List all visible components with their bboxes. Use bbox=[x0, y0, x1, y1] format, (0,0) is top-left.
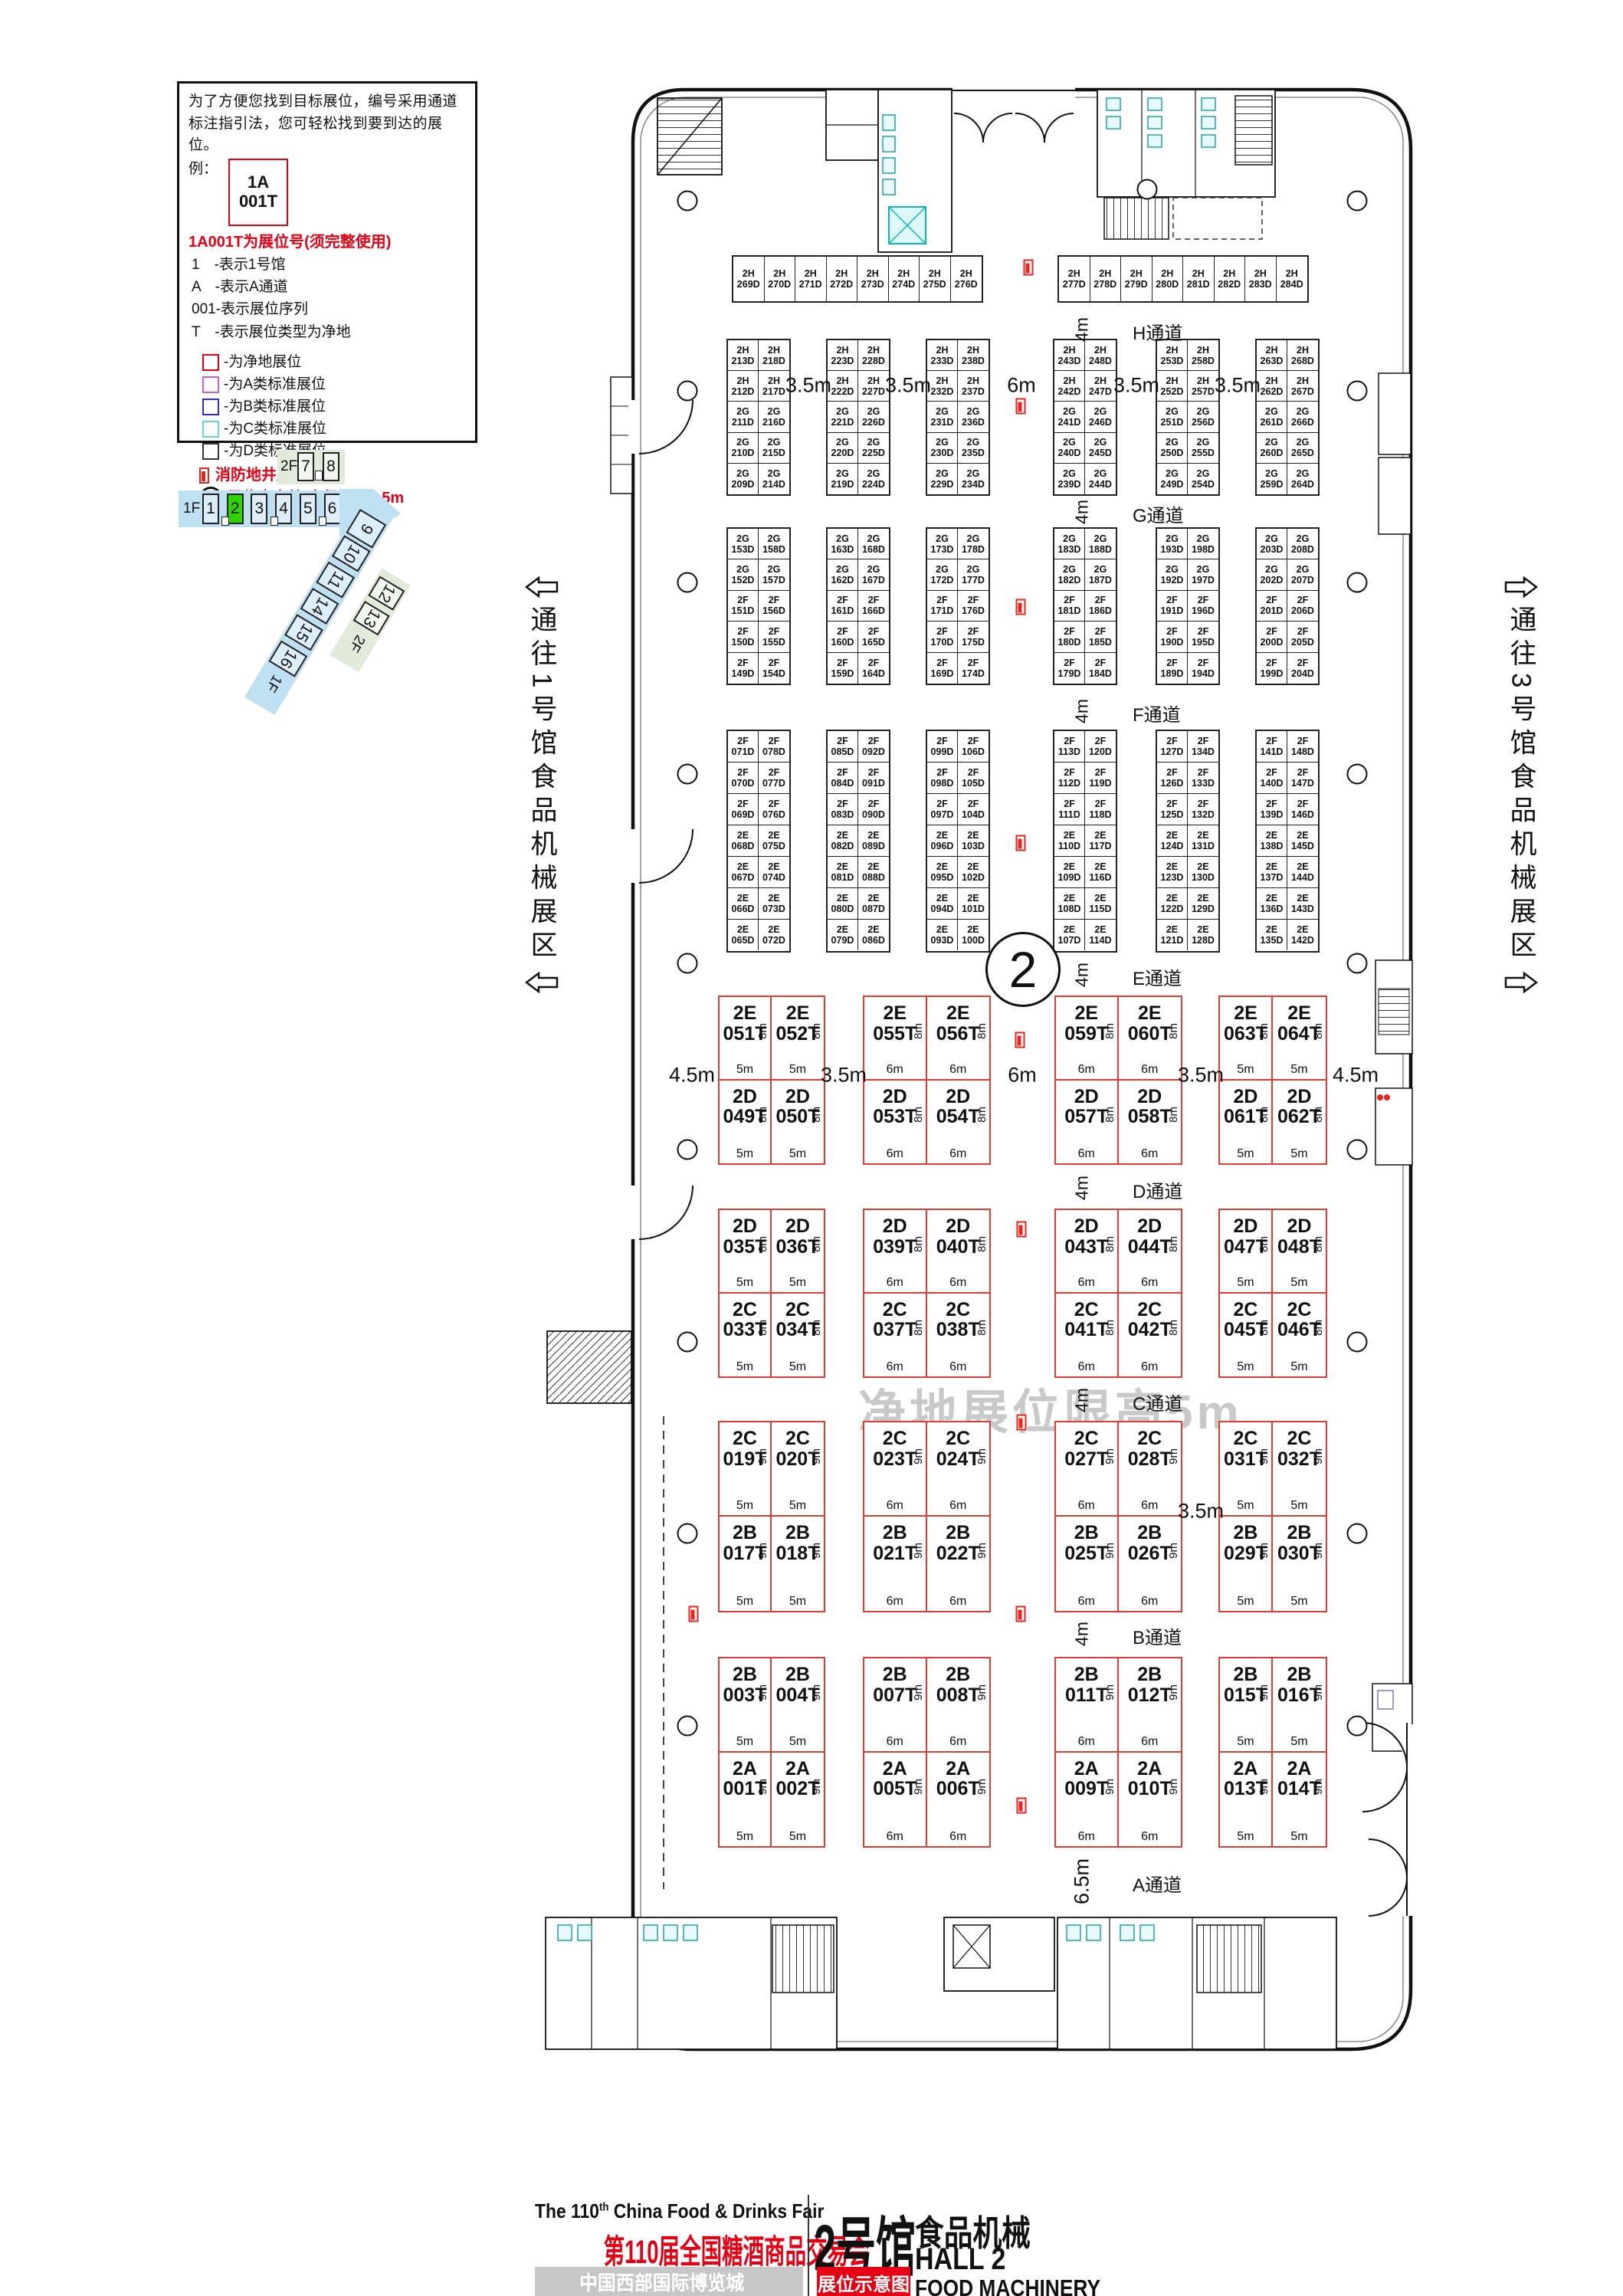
booth-depth-dimension: 8m bbox=[1257, 1236, 1271, 1252]
booth: 2B021T9m6m bbox=[864, 1517, 927, 1611]
booth: 2H218D bbox=[759, 340, 789, 371]
booth-width-dimension: 5m bbox=[720, 1147, 770, 1161]
booth-depth-dimension: 9m bbox=[912, 1448, 925, 1465]
booth: 2F196D bbox=[1188, 591, 1218, 622]
aisle-label: G通道 bbox=[1133, 500, 1184, 527]
booth-width-dimension: 6m bbox=[927, 1499, 990, 1513]
booth: 2G214D bbox=[759, 464, 789, 494]
booth: 2H267D bbox=[1287, 371, 1318, 402]
booth-group: 2H243D2H248D2H242D2H247D2G241D2G246D2G24… bbox=[1053, 339, 1117, 496]
booth: 2F161D bbox=[828, 591, 858, 622]
aisle-label: D通道 bbox=[1133, 1176, 1182, 1203]
booth: 2E107D bbox=[1054, 920, 1085, 951]
booth-width-dimension: 6m bbox=[864, 1360, 926, 1374]
aisle-label: B通道 bbox=[1133, 1622, 1182, 1649]
booth-width-dimension: 6m bbox=[1056, 1147, 1117, 1161]
booth-group-raw: 2B011T9m6m2B012T9m6m2A009T9m6m2A010T9m6m bbox=[1054, 1657, 1182, 1848]
booth-group-raw: 2D047T8m5m2D048T8m5m2C045T8m5m2C046T8m5m bbox=[1218, 1209, 1327, 1378]
booth-depth-dimension: 9m bbox=[975, 1543, 989, 1559]
plan-badge: 展位示意图 bbox=[817, 2267, 910, 2296]
aisle-label: E通道 bbox=[1133, 963, 1182, 990]
booth-depth-dimension: 8m bbox=[756, 1320, 769, 1336]
booth: 2E096D bbox=[927, 825, 958, 857]
booth: 2F201D bbox=[1257, 591, 1287, 622]
booth: 2E079D bbox=[828, 920, 858, 951]
booth: 2F204D bbox=[1287, 653, 1318, 684]
booth-group: 2H223D2H228D2H222D2H227D2G221D2G226D2G22… bbox=[826, 339, 890, 496]
booth-group-raw: 2D043T8m6m2D044T8m6m2C041T8m6m2C042T8m6m bbox=[1054, 1209, 1182, 1378]
booth: 2F099D bbox=[927, 731, 958, 763]
booth: 2G256D bbox=[1188, 402, 1218, 432]
booth: 2G216D bbox=[759, 402, 789, 432]
aisle-width-dimension: 4m bbox=[1072, 699, 1093, 723]
booth: 2C042T8m6m bbox=[1119, 1294, 1182, 1377]
booth-depth-dimension: 8m bbox=[1167, 1107, 1180, 1123]
fire-well-icon bbox=[1015, 1032, 1025, 1048]
booth-depth-dimension: 9m bbox=[1167, 1684, 1180, 1701]
booth-width-dimension: 5m bbox=[1220, 1147, 1271, 1161]
booth: 2D036T8m5m bbox=[772, 1210, 824, 1294]
booth-block: 2H277D2H278D2H279D2H280D2H281D2H282D2H28… bbox=[1057, 255, 1309, 303]
booth: 2H238D bbox=[958, 340, 989, 371]
aisle-label: A通道 bbox=[1133, 1870, 1182, 1897]
booth: 2G219D bbox=[828, 464, 858, 494]
booth-depth-dimension: 8m bbox=[810, 1236, 823, 1252]
booth: 2E066D bbox=[728, 888, 759, 920]
booth: 2E135D bbox=[1257, 920, 1287, 951]
booth: 2H270D bbox=[765, 257, 796, 301]
aisle-width-dimension: 4m bbox=[1072, 963, 1093, 987]
booth: 2C024T9m6m bbox=[927, 1422, 990, 1517]
booth: 2F076D bbox=[759, 794, 789, 825]
booth: 2F159D bbox=[828, 653, 858, 684]
booth: 2B029T9m5m bbox=[1220, 1517, 1273, 1611]
booth-depth-dimension: 9m bbox=[1312, 1543, 1325, 1559]
booth: 2E068D bbox=[728, 825, 759, 857]
booth: 2E087D bbox=[858, 888, 889, 920]
booth: 2F195D bbox=[1188, 622, 1218, 652]
booth: 2H233D bbox=[927, 340, 958, 371]
booth-width-dimension: 6m bbox=[864, 1595, 926, 1609]
booth: 2E080D bbox=[828, 888, 858, 920]
booth-depth-dimension: 8m bbox=[756, 1023, 769, 1039]
booth: 2F127D bbox=[1157, 731, 1188, 763]
gap-dimension: 3.5m bbox=[785, 374, 831, 398]
booth: 2G234D bbox=[958, 464, 989, 494]
column-icon bbox=[677, 1332, 698, 1353]
booth-group: 2F141D2F148D2F140D2F147D2F139D2F146D2E13… bbox=[1255, 730, 1320, 953]
booth-width-dimension: 5m bbox=[1220, 1276, 1271, 1290]
booth-depth-dimension: 9m bbox=[912, 1543, 925, 1559]
column-icon bbox=[1347, 381, 1368, 402]
booth-depth-dimension: 8m bbox=[1103, 1107, 1116, 1123]
booth: 2E145D bbox=[1287, 825, 1318, 857]
booth: 2C037T8m6m bbox=[864, 1294, 927, 1377]
booth-depth-dimension: 8m bbox=[1312, 1320, 1325, 1336]
booth-width-dimension: 6m bbox=[864, 1499, 926, 1513]
booth: 2E065D bbox=[728, 920, 759, 951]
booth: 2H258D bbox=[1188, 340, 1218, 371]
hall-name-en: HALL 2 bbox=[915, 2242, 1005, 2277]
booth: 2G249D bbox=[1157, 464, 1188, 494]
booth-group-raw: 2C027T9m6m2C028T9m6m2B025T9m6m2B026T9m6m bbox=[1054, 1421, 1182, 1612]
booth-depth-dimension: 9m bbox=[810, 1779, 823, 1795]
booth: 2B017T9m5m bbox=[720, 1517, 772, 1611]
booth: 2G230D bbox=[927, 433, 958, 464]
aisle-width-dimension: 6.5m bbox=[1071, 1858, 1094, 1904]
booth: 2F184D bbox=[1085, 653, 1116, 684]
booth: 2F105D bbox=[958, 763, 989, 794]
booth-width-dimension: 6m bbox=[1119, 1499, 1182, 1513]
booth-width-dimension: 6m bbox=[1056, 1360, 1117, 1374]
booth: 2A002T9m5m bbox=[772, 1753, 824, 1847]
booth-depth-dimension: 9m bbox=[1257, 1779, 1271, 1795]
gap-dimension: 3.5m bbox=[821, 1063, 867, 1087]
booth: 2E124D bbox=[1157, 825, 1188, 857]
floorplan-page: 为了方便您找到目标展位，编号采用通道标注指引法，您可轻松找到要到达的展位。 例：… bbox=[0, 0, 1623, 2296]
booth-width-dimension: 6m bbox=[927, 1595, 990, 1609]
booth-group-raw: 2D039T8m6m2D040T8m6m2C037T8m6m2C038T8m6m bbox=[863, 1209, 991, 1378]
booth-width-dimension: 5m bbox=[1273, 1147, 1326, 1161]
booth: 2D048T8m5m bbox=[1273, 1210, 1326, 1294]
booth: 2E138D bbox=[1257, 825, 1287, 857]
booth-width-dimension: 5m bbox=[720, 1360, 770, 1374]
booth: 2F070D bbox=[728, 763, 759, 794]
booth-depth-dimension: 8m bbox=[1167, 1236, 1180, 1252]
booth: 2E137D bbox=[1257, 857, 1287, 888]
booth: 2G192D bbox=[1157, 559, 1188, 590]
column-icon bbox=[677, 572, 698, 593]
booth: 2F092D bbox=[858, 731, 889, 763]
booth: 2G225D bbox=[858, 433, 889, 464]
booth-depth-dimension: 8m bbox=[912, 1023, 925, 1039]
booth: 2F176D bbox=[958, 591, 989, 622]
booth-width-dimension: 5m bbox=[1273, 1360, 1326, 1374]
booth: 2D053T8m6m bbox=[864, 1081, 927, 1164]
booth: 2G152D bbox=[728, 559, 759, 590]
booth-width-dimension: 5m bbox=[720, 1595, 770, 1609]
booth-depth-dimension: 9m bbox=[810, 1448, 823, 1465]
booth-depth-dimension: 9m bbox=[1312, 1448, 1325, 1465]
booth-width-dimension: 5m bbox=[1220, 1499, 1271, 1513]
booth-group: 2F113D2F120D2F112D2F119D2F111D2F118D2E11… bbox=[1053, 730, 1117, 953]
column-icon bbox=[1347, 191, 1368, 212]
booth: 2G245D bbox=[1085, 433, 1116, 464]
booth: 2C033T8m5m bbox=[720, 1294, 772, 1377]
booth-width-dimension: 5m bbox=[1273, 1276, 1326, 1290]
booth-depth-dimension: 8m bbox=[912, 1320, 925, 1336]
booth: 2F175D bbox=[958, 622, 989, 652]
booth: 2G202D bbox=[1257, 559, 1287, 590]
booth: 2F104D bbox=[958, 794, 989, 825]
booth: 2G193D bbox=[1157, 529, 1188, 559]
booth: 2E064T8m5m bbox=[1273, 997, 1326, 1081]
column-icon bbox=[677, 381, 698, 402]
booth-group-raw: 2E051T8m5m2E052T8m5m2D049T8m5m2D050T8m5m bbox=[718, 995, 825, 1165]
booth: 2H263D bbox=[1257, 340, 1287, 371]
booth-group-raw: 2B015T9m5m2B016T9m5m2A013T9m5m2A014T9m5m bbox=[1218, 1657, 1327, 1848]
booth: 2E075D bbox=[759, 825, 789, 857]
booth: 2H248D bbox=[1085, 340, 1116, 371]
booth: 2F156D bbox=[759, 591, 789, 622]
booth: 2G259D bbox=[1257, 464, 1287, 494]
booth-width-dimension: 6m bbox=[864, 1276, 926, 1290]
booth: 2F205D bbox=[1287, 622, 1318, 652]
column-icon bbox=[677, 764, 698, 785]
booth-group: 2G173D2G178D2G172D2G177D2F171D2F176D2F17… bbox=[926, 527, 990, 685]
booth: 2F097D bbox=[927, 794, 958, 825]
booth: 2F113D bbox=[1054, 731, 1085, 763]
booth-depth-dimension: 9m bbox=[1167, 1448, 1180, 1465]
booth-group: 2G163D2G168D2G162D2G167D2F161D2F166D2F16… bbox=[826, 527, 890, 685]
fire-well-icon bbox=[1017, 1798, 1027, 1814]
footer-divider bbox=[808, 2195, 809, 2296]
booth: 2H274D bbox=[889, 257, 920, 301]
booth: 2H247D bbox=[1085, 371, 1116, 402]
booth: 2E102D bbox=[958, 857, 989, 888]
booth: 2F125D bbox=[1157, 794, 1188, 825]
column-icon bbox=[1137, 179, 1158, 200]
hall-number-circle: 2 bbox=[985, 932, 1061, 1007]
booth: 2G183D bbox=[1054, 529, 1085, 559]
booth: 2G197D bbox=[1188, 559, 1218, 590]
booth: 2F199D bbox=[1257, 653, 1287, 684]
booth: 2F206D bbox=[1287, 591, 1318, 622]
column-icon bbox=[1347, 1332, 1368, 1353]
booth-width-dimension: 6m bbox=[864, 1830, 926, 1844]
booth: 2E128D bbox=[1188, 920, 1218, 951]
booth-group-raw: 2E059T8m6m2E060T8m6m2D057T8m6m2D058T8m6m bbox=[1054, 995, 1182, 1165]
booth-width-dimension: 6m bbox=[864, 1735, 926, 1749]
booth-group-raw: 2B003T9m5m2B004T9m5m2A001T9m5m2A002T9m5m bbox=[718, 1657, 825, 1848]
booth: 2F160D bbox=[828, 622, 858, 652]
booth: 2G241D bbox=[1054, 402, 1085, 432]
booth: 2F118D bbox=[1085, 794, 1116, 825]
booth-depth-dimension: 9m bbox=[1257, 1684, 1271, 1701]
booth-depth-dimension: 9m bbox=[975, 1448, 989, 1465]
booth: 2E095D bbox=[927, 857, 958, 888]
booth: 2A009T9m6m bbox=[1056, 1753, 1119, 1847]
booth-depth-dimension: 9m bbox=[1103, 1684, 1116, 1701]
booth-width-dimension: 5m bbox=[772, 1830, 824, 1844]
booth-width-dimension: 5m bbox=[720, 1830, 770, 1844]
booth-depth-dimension: 8m bbox=[912, 1107, 925, 1123]
gap-dimension: 3.5m bbox=[1113, 374, 1159, 398]
booth: 2E121D bbox=[1157, 920, 1188, 951]
booth-group-raw: 2E063T8m5m2E064T8m5m2D061T8m5m2D062T8m5m bbox=[1218, 995, 1327, 1165]
booth-group: 2G203D2G208D2G202D2G207D2F201D2F206D2F20… bbox=[1255, 527, 1320, 685]
booth-depth-dimension: 9m bbox=[975, 1684, 989, 1701]
booth-width-dimension: 6m bbox=[927, 1063, 990, 1077]
booth: 2F194D bbox=[1188, 653, 1218, 684]
booth: 2F155D bbox=[759, 622, 789, 652]
booth: 2C020T9m5m bbox=[772, 1422, 824, 1517]
booth-group: 2G183D2G188D2G182D2G187D2F181D2F186D2F18… bbox=[1053, 527, 1117, 685]
booth: 2F150D bbox=[728, 622, 759, 652]
booth: 2G198D bbox=[1188, 529, 1218, 559]
booth-group: 2G153D2G158D2G152D2G157D2F151D2F156D2F15… bbox=[726, 527, 791, 685]
fire-well-icon bbox=[1017, 1222, 1027, 1238]
gap-dimension: 6m bbox=[1008, 1063, 1037, 1087]
booth: 2F174D bbox=[958, 653, 989, 684]
booth: 2H279D bbox=[1121, 257, 1152, 301]
booth: 2D061T8m5m bbox=[1220, 1081, 1273, 1164]
aisle-width-dimension: 4m bbox=[1072, 1622, 1093, 1646]
booth: 2F171D bbox=[927, 591, 958, 622]
booth-width-dimension: 5m bbox=[772, 1063, 824, 1077]
booth: 2E144D bbox=[1287, 857, 1318, 888]
booth: 2C041T8m6m bbox=[1056, 1294, 1119, 1377]
booth: 2F181D bbox=[1054, 591, 1085, 622]
booth: 2G240D bbox=[1054, 433, 1085, 464]
booth-depth-dimension: 9m bbox=[1103, 1543, 1116, 1559]
booth: 2G266D bbox=[1287, 402, 1318, 432]
booth: 2F139D bbox=[1257, 794, 1287, 825]
booth: 2D035T8m5m bbox=[720, 1210, 772, 1294]
booth-depth-dimension: 8m bbox=[1167, 1023, 1180, 1039]
booth: 2C019T9m5m bbox=[720, 1422, 772, 1517]
booth: 2G162D bbox=[828, 559, 858, 590]
booth: 2E117D bbox=[1085, 825, 1116, 857]
column-icon bbox=[677, 953, 698, 974]
booth: 2A013T9m5m bbox=[1220, 1753, 1273, 1847]
booth: 2E143D bbox=[1287, 888, 1318, 920]
booth: 2F186D bbox=[1085, 591, 1116, 622]
booth: 2H272D bbox=[827, 257, 858, 301]
booth: 2B003T9m5m bbox=[720, 1658, 772, 1753]
booth-width-dimension: 6m bbox=[1056, 1735, 1117, 1749]
booth-depth-dimension: 9m bbox=[756, 1448, 769, 1465]
booth: 2E089D bbox=[858, 825, 889, 857]
booth: 2B030T9m5m bbox=[1273, 1517, 1326, 1611]
booth: 2G173D bbox=[927, 529, 958, 559]
booth: 2F119D bbox=[1085, 763, 1116, 794]
booth: 2G255D bbox=[1188, 433, 1218, 464]
column-icon bbox=[677, 1524, 698, 1544]
gap-dimension: 3.5m bbox=[885, 374, 931, 398]
booth: 2F084D bbox=[828, 763, 858, 794]
booth: 2D039T8m6m bbox=[864, 1210, 927, 1294]
booth-depth-dimension: 8m bbox=[975, 1236, 989, 1252]
booth: 2H243D bbox=[1054, 340, 1085, 371]
booth: 2D043T8m6m bbox=[1056, 1210, 1119, 1294]
booth: 2E109D bbox=[1054, 857, 1085, 888]
booth-group-raw: 2C019T9m5m2C020T9m5m2B017T9m5m2B018T9m5m bbox=[718, 1421, 825, 1612]
booth-width-dimension: 6m bbox=[1119, 1276, 1182, 1290]
booth: 2H262D bbox=[1257, 371, 1287, 402]
booth: 2B004T9m5m bbox=[772, 1658, 824, 1753]
booth: 2C027T9m6m bbox=[1056, 1422, 1119, 1517]
booth: 2E063T8m5m bbox=[1220, 997, 1273, 1081]
booth: 2H284D bbox=[1277, 257, 1308, 301]
booth: 2B011T9m6m bbox=[1056, 1658, 1119, 1753]
booth: 2C032T9m5m bbox=[1273, 1422, 1326, 1517]
booth-depth-dimension: 9m bbox=[975, 1779, 989, 1795]
column-icon bbox=[677, 1716, 698, 1737]
gap-dimension: 3.5m bbox=[1178, 1500, 1224, 1524]
booth: 2F141D bbox=[1257, 731, 1287, 763]
booth-depth-dimension: 9m bbox=[912, 1779, 925, 1795]
booth: 2A014T9m5m bbox=[1273, 1753, 1326, 1847]
booth: 2F149D bbox=[728, 653, 759, 684]
booth: 2G182D bbox=[1054, 559, 1085, 590]
booth: 2H228D bbox=[858, 340, 889, 371]
booth-group-raw: 2E055T8m6m2E056T8m6m2D053T8m6m2D054T8m6m bbox=[863, 995, 991, 1165]
booth-width-dimension: 5m bbox=[772, 1276, 824, 1290]
booth-depth-dimension: 8m bbox=[1312, 1236, 1325, 1252]
booth-width-dimension: 5m bbox=[1220, 1063, 1271, 1077]
fire-well-icon bbox=[1016, 399, 1026, 415]
booth-width-dimension: 6m bbox=[1056, 1276, 1117, 1290]
booth: 2F146D bbox=[1287, 794, 1318, 825]
booth: 2G224D bbox=[858, 464, 889, 494]
booth: 2E051T8m5m bbox=[720, 997, 772, 1081]
booth-group-raw: 2C023T9m6m2C024T9m6m2B021T9m6m2B022T9m6m bbox=[863, 1421, 991, 1612]
booth-width-dimension: 5m bbox=[720, 1499, 770, 1513]
booth: 2G203D bbox=[1257, 529, 1287, 559]
booth: 2D054T8m6m bbox=[927, 1081, 990, 1164]
booth: 2G244D bbox=[1085, 464, 1116, 494]
column-icon bbox=[1347, 572, 1368, 593]
booth: 2B008T9m6m bbox=[927, 1658, 990, 1753]
booth: 2F069D bbox=[728, 794, 759, 825]
booth: 2F185D bbox=[1085, 622, 1116, 652]
booth-width-dimension: 5m bbox=[720, 1063, 770, 1077]
column-icon bbox=[677, 1140, 698, 1160]
booth-depth-dimension: 9m bbox=[1167, 1779, 1180, 1795]
booth: 2G210D bbox=[728, 433, 759, 464]
booth: 2F190D bbox=[1157, 622, 1188, 652]
booth: 2F091D bbox=[858, 763, 889, 794]
booth: 2G163D bbox=[828, 529, 858, 559]
booth: 2F078D bbox=[759, 731, 789, 763]
booth: 2E072D bbox=[759, 920, 789, 951]
booth: 2F180D bbox=[1054, 622, 1085, 652]
aisle-label: H通道 bbox=[1133, 318, 1182, 345]
gap-dimension: 6m bbox=[1007, 374, 1036, 398]
hall-category-en: FOOD MACHINERY bbox=[915, 2275, 1100, 2296]
booth-depth-dimension: 9m bbox=[810, 1543, 823, 1559]
booth-width-dimension: 5m bbox=[720, 1735, 770, 1749]
booth: 2G209D bbox=[728, 464, 759, 494]
booth-depth-dimension: 8m bbox=[1312, 1023, 1325, 1039]
booth-depth-dimension: 9m bbox=[810, 1684, 823, 1701]
booth: 2H222D bbox=[828, 371, 858, 402]
booth: 2B018T9m5m bbox=[772, 1517, 824, 1611]
booth: 2G167D bbox=[858, 559, 889, 590]
booth-width-dimension: 6m bbox=[927, 1830, 990, 1844]
booth: 2F154D bbox=[759, 653, 789, 684]
booth-depth-dimension: 8m bbox=[975, 1107, 989, 1123]
booth-group: 2F071D2F078D2F070D2F077D2F069D2F076D2E06… bbox=[726, 730, 791, 953]
booth-width-dimension: 6m bbox=[1119, 1595, 1182, 1609]
booth-width-dimension: 6m bbox=[864, 1147, 926, 1161]
booth: 2D058T8m6m bbox=[1119, 1081, 1182, 1164]
booth: 2E056T8m6m bbox=[927, 997, 990, 1081]
booth: 2E073D bbox=[759, 888, 789, 920]
booth-width-dimension: 6m bbox=[1119, 1063, 1182, 1077]
booth-width-dimension: 6m bbox=[1056, 1830, 1117, 1844]
booth-group: 2F099D2F106D2F098D2F105D2F097D2F104D2E09… bbox=[926, 730, 990, 953]
booth-depth-dimension: 8m bbox=[1167, 1320, 1180, 1336]
booth: 2G153D bbox=[728, 529, 759, 559]
booth: 2G208D bbox=[1287, 529, 1318, 559]
booth: 2G250D bbox=[1157, 433, 1188, 464]
booth: 2F191D bbox=[1157, 591, 1188, 622]
booth: 2A006T9m6m bbox=[927, 1753, 990, 1847]
booth-depth-dimension: 8m bbox=[1103, 1236, 1116, 1252]
booth: 2D062T8m5m bbox=[1273, 1081, 1326, 1164]
